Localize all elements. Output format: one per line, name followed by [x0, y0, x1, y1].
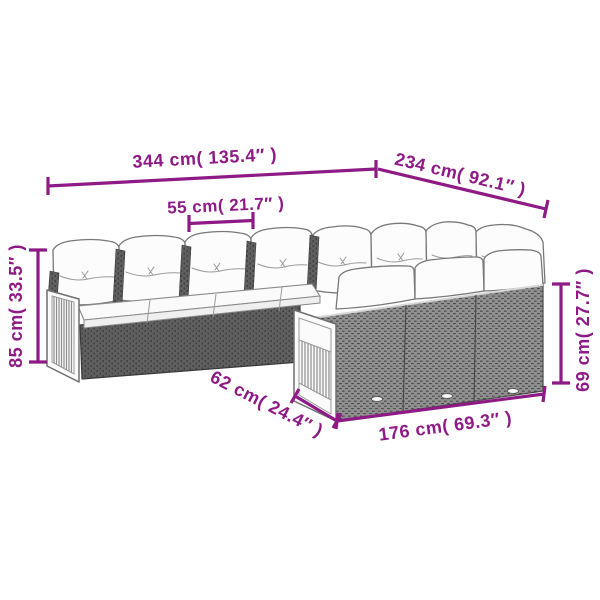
dim-wing-depth: 234 cm( 92.1″ )	[378, 149, 548, 218]
dimension-label: 55 cm( 21.7″ )	[167, 193, 285, 217]
dimension-label: 344 cm( 135.4″ )	[132, 144, 278, 172]
dimension-label: 234 cm( 92.1″ )	[393, 149, 528, 200]
wing-cushion-back-1	[336, 266, 415, 309]
product-dimension-diagram: 344 cm( 135.4″ ) 234 cm( 92.1″ ) 55 cm( …	[0, 0, 600, 600]
dimension-line	[552, 284, 570, 383]
diagram-canvas: 344 cm( 135.4″ ) 234 cm( 92.1″ ) 55 cm( …	[0, 0, 600, 600]
dimension-label: 69 cm( 27.7″ )	[573, 268, 593, 392]
foot-clip	[372, 397, 383, 402]
wing-cushion-back-2	[415, 257, 484, 299]
dim-back-height: 85 cm( 33.5″ )	[6, 244, 47, 368]
foot-clip	[442, 394, 453, 399]
wing-cushion-back-3	[484, 250, 543, 291]
dim-total-width: 344 cm( 135.4″ )	[48, 144, 376, 195]
dimension-line	[29, 250, 47, 362]
dim-wing-back-height: 69 cm( 27.7″ )	[552, 268, 593, 392]
corner-arm-panel	[294, 310, 336, 421]
back-cushion-4	[251, 228, 313, 295]
foot-clip	[508, 389, 519, 394]
dim-seat-width: 55 cm( 21.7″ )	[167, 193, 285, 232]
dimension-label: 85 cm( 33.5″ )	[6, 244, 26, 368]
left-arm-panel	[47, 290, 79, 382]
